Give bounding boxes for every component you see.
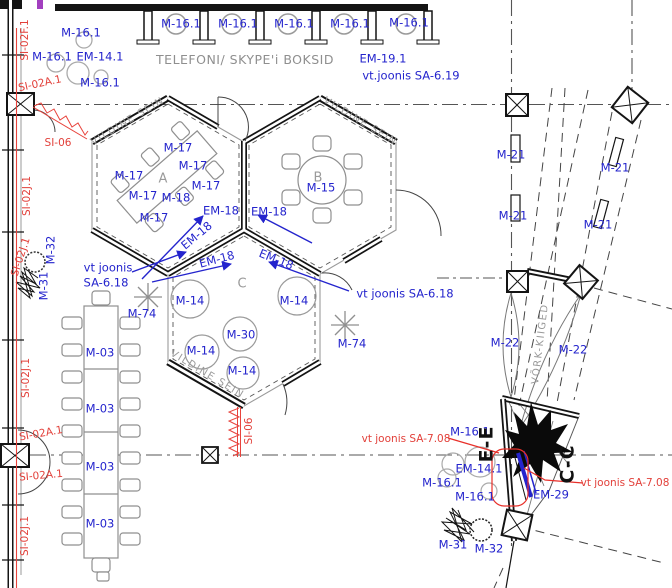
magenta-marker xyxy=(37,0,43,9)
hexagon-thick-walls xyxy=(92,98,396,406)
perimeter-walls xyxy=(0,0,428,588)
round-table-b xyxy=(282,136,362,223)
corner-stools xyxy=(47,32,108,84)
furniture xyxy=(62,117,497,581)
top-wall xyxy=(55,4,428,11)
floor-plan: M-16.1M-16.1M-16.1M-16.1M-16.1M-16.1M-16… xyxy=(0,0,672,588)
stage-area xyxy=(492,398,579,588)
beanbags-c xyxy=(171,277,316,389)
light-fixtures xyxy=(511,135,623,229)
blue-leader-arrows xyxy=(132,215,349,291)
floor-plan-drawing xyxy=(0,0,672,588)
long-table-m03 xyxy=(62,291,140,581)
phone-booths xyxy=(47,11,439,84)
meeting-table-a xyxy=(105,117,230,238)
